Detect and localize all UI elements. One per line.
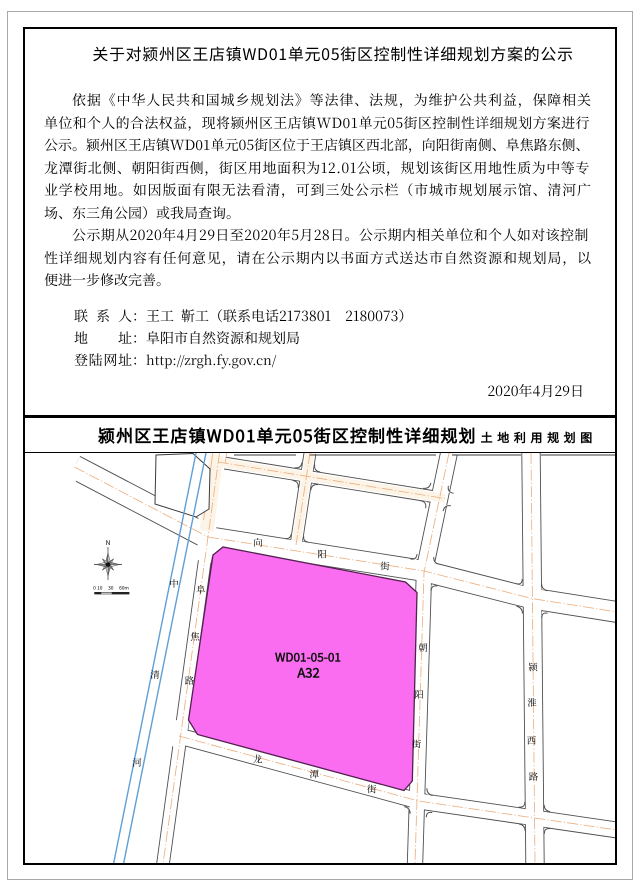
svg-text:街: 街 xyxy=(380,559,390,573)
svg-text:N: N xyxy=(106,537,111,547)
svg-text:街: 街 xyxy=(412,737,422,751)
svg-text:龙: 龙 xyxy=(253,752,263,766)
svg-text:阳: 阳 xyxy=(317,547,327,561)
svg-text:路: 路 xyxy=(529,769,539,783)
svg-text:河: 河 xyxy=(132,755,142,769)
svg-text:向: 向 xyxy=(253,535,263,549)
svg-text:路: 路 xyxy=(185,673,195,687)
svg-text:朝: 朝 xyxy=(418,640,428,654)
svg-text:10: 10 xyxy=(97,585,103,592)
svg-text:0: 0 xyxy=(93,585,96,592)
svg-text:30: 30 xyxy=(108,585,114,592)
svg-text:街: 街 xyxy=(367,782,377,796)
svg-text:淮: 淮 xyxy=(527,695,537,709)
svg-text:阜: 阜 xyxy=(196,582,206,596)
svg-text:焦: 焦 xyxy=(190,629,200,643)
svg-text:清: 清 xyxy=(150,667,160,681)
svg-text:A32: A32 xyxy=(296,663,319,682)
svg-text:西: 西 xyxy=(527,733,537,747)
svg-text:阳: 阳 xyxy=(414,687,424,701)
svg-text:中: 中 xyxy=(169,576,179,590)
svg-text:颍: 颍 xyxy=(528,660,538,674)
svg-text:60m: 60m xyxy=(119,585,129,592)
svg-text:潭: 潭 xyxy=(310,766,320,780)
